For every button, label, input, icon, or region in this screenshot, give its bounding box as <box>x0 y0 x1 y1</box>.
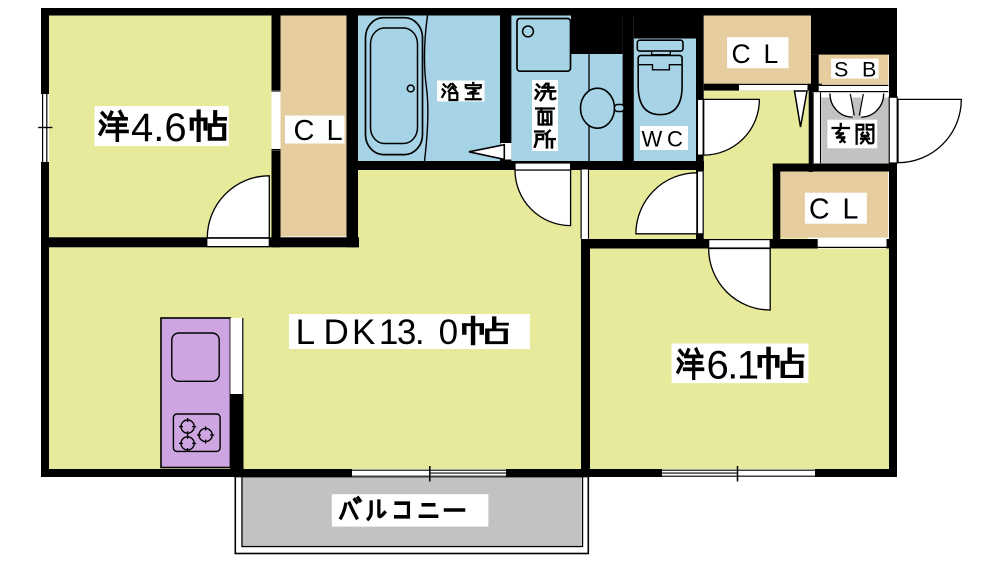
svg-text:C: C <box>294 115 315 147</box>
svg-text:C: C <box>809 193 830 225</box>
svg-text:4.6: 4.6 <box>131 106 187 150</box>
svg-text:13.: 13. <box>379 313 423 352</box>
svg-text:C: C <box>732 39 751 69</box>
svg-text:L: L <box>327 115 343 147</box>
svg-text:C: C <box>667 127 683 152</box>
svg-text:S: S <box>834 58 848 82</box>
svg-text:6.1: 6.1 <box>707 344 758 388</box>
svg-text:L: L <box>296 313 315 352</box>
svg-text:L: L <box>764 39 779 69</box>
svg-text:L: L <box>843 193 859 225</box>
svg-text:B: B <box>862 58 876 82</box>
svg-text:0: 0 <box>439 313 458 352</box>
svg-text:W: W <box>642 127 663 152</box>
svg-text:K: K <box>352 313 375 352</box>
svg-text:D: D <box>324 313 349 352</box>
